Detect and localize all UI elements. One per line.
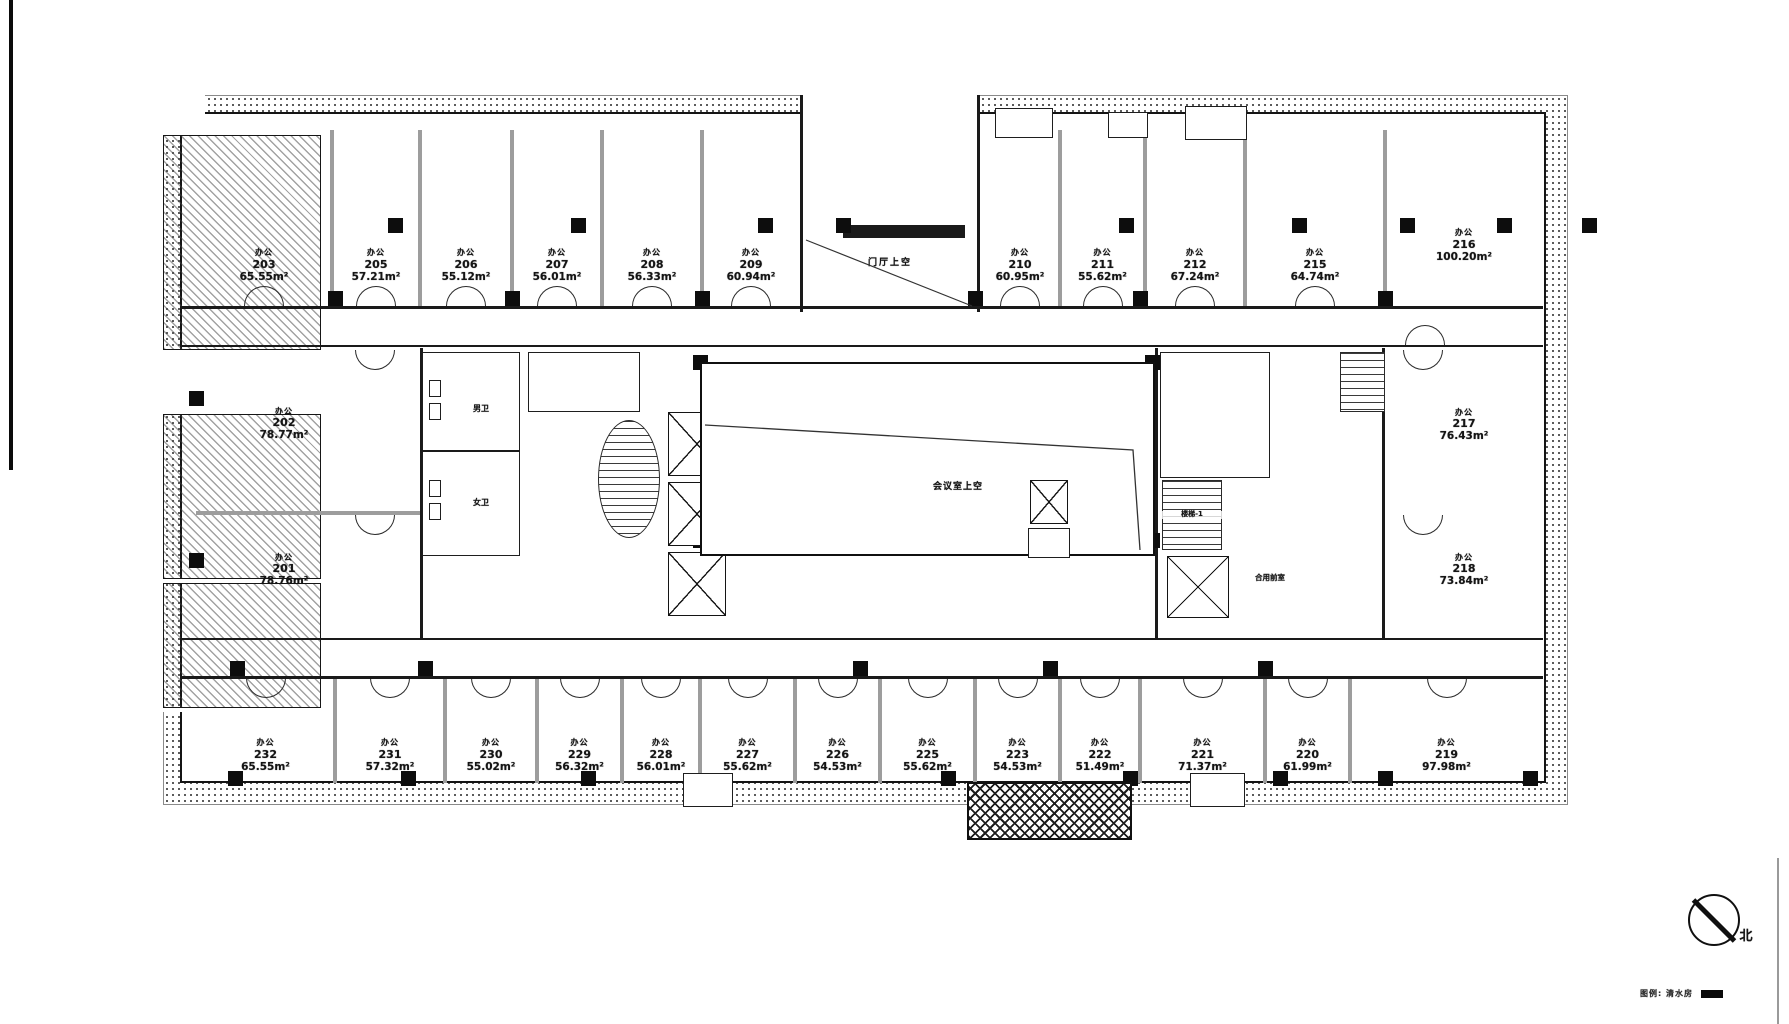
column xyxy=(695,291,710,306)
partition-wall xyxy=(1383,130,1387,306)
door-arc xyxy=(1423,515,1443,535)
column xyxy=(836,218,851,233)
room-unit-label: 办公 xyxy=(1135,248,1255,258)
wall xyxy=(180,306,1543,309)
column xyxy=(1273,771,1288,786)
stair-1-label: 楼梯-1 xyxy=(1162,511,1222,519)
room-number: 212 xyxy=(1135,258,1255,271)
service-shaft xyxy=(528,352,640,412)
room-area: 100.20m² xyxy=(1404,251,1524,264)
column xyxy=(758,218,773,233)
toilet-fixture xyxy=(429,380,441,397)
door-arc xyxy=(1403,515,1423,535)
stair-2 xyxy=(1340,352,1385,412)
room-area: 65.55m² xyxy=(206,761,326,774)
room-number: 232 xyxy=(206,748,326,761)
room-area: 78.76m² xyxy=(224,575,344,588)
room-area: 76.43m² xyxy=(1404,430,1524,443)
room-label-201: 办公20178.76m² xyxy=(224,553,344,588)
room-area: 64.74m² xyxy=(1255,271,1375,284)
roof-canopy-box xyxy=(1185,106,1247,140)
toilet-fixture xyxy=(429,403,441,420)
column xyxy=(1497,218,1512,233)
column xyxy=(1378,771,1393,786)
north-arrow: 北 xyxy=(1688,894,1758,958)
room-area: 67.24m² xyxy=(1135,271,1255,284)
room-unit-label: 办公 xyxy=(224,407,344,417)
room-number: 215 xyxy=(1255,258,1375,271)
wall xyxy=(180,638,1543,640)
door-arc xyxy=(1405,325,1425,345)
column xyxy=(1258,661,1273,676)
room-label-216: 办公216100.20m² xyxy=(1404,228,1524,263)
room-number: 216 xyxy=(1404,238,1524,251)
column xyxy=(505,291,520,306)
room-unit-label: 办公 xyxy=(1255,248,1375,258)
column xyxy=(328,291,343,306)
column xyxy=(189,391,204,406)
roof-canopy-box xyxy=(995,108,1053,138)
room-unit-label: 办公 xyxy=(1404,553,1524,563)
column xyxy=(941,771,956,786)
wall xyxy=(180,345,1543,347)
toilet-divider-wall xyxy=(422,450,520,452)
room-label-232: 办公23265.55m² xyxy=(206,738,326,773)
room-number: 201 xyxy=(224,562,344,575)
column xyxy=(1119,218,1134,233)
column xyxy=(388,218,403,233)
shared-front-room-label: 合用前室 xyxy=(1225,574,1315,582)
bottom-canopy-box xyxy=(683,773,733,807)
mens-toilet-label: 男卫 xyxy=(459,405,503,414)
left-page-edge-line xyxy=(9,0,13,470)
room-unit-label: 办公 xyxy=(206,738,326,748)
column xyxy=(401,771,416,786)
column xyxy=(1133,291,1148,306)
room-unit-label: 办公 xyxy=(1387,738,1507,748)
wall xyxy=(180,676,1543,679)
elevator-shaft xyxy=(668,552,726,616)
column xyxy=(1523,771,1538,786)
room-area: 60.94m² xyxy=(691,271,811,284)
central-hall xyxy=(700,362,1155,556)
fire-elevator-shaft xyxy=(1167,556,1229,618)
room-unit-label: 办公 xyxy=(1143,738,1263,748)
partition-wall xyxy=(196,511,420,515)
room-area: 73.84m² xyxy=(1404,575,1524,588)
room-unit-label: 办公 xyxy=(691,248,811,258)
room-label-217: 办公21776.43m² xyxy=(1404,408,1524,443)
bottom-canopy-box xyxy=(1190,773,1245,807)
column xyxy=(1043,661,1058,676)
room-area: 71.37m² xyxy=(1143,761,1263,774)
column xyxy=(571,218,586,233)
duct-shaft-small xyxy=(1028,528,1070,558)
room-number: 218 xyxy=(1404,562,1524,575)
room-unit-label: 办公 xyxy=(1404,408,1524,418)
room-label-209: 办公20960.94m² xyxy=(691,248,811,283)
toilet-fixture xyxy=(429,480,441,497)
room-number: 219 xyxy=(1387,748,1507,761)
room-label-219: 办公21997.98m² xyxy=(1387,738,1507,773)
right-page-edge-line xyxy=(1777,858,1779,1024)
wall xyxy=(1155,348,1158,638)
duct-shaft xyxy=(1030,480,1068,524)
legend-text: 图例: 清水房 xyxy=(1640,988,1693,999)
roof-canopy-box xyxy=(1108,112,1148,138)
hall-void-label: 会议室上空 xyxy=(893,483,1023,493)
column xyxy=(1378,291,1393,306)
column xyxy=(228,771,243,786)
room-area: 78.77m² xyxy=(224,429,344,442)
legend-swatch xyxy=(1701,990,1723,998)
column xyxy=(968,291,983,306)
room-number: 203 xyxy=(204,258,324,271)
room-label-221: 办公22171.37m² xyxy=(1143,738,1263,773)
room-label-203: 办公20365.55m² xyxy=(204,248,324,283)
legend: 图例: 清水房 xyxy=(1640,988,1723,999)
column xyxy=(1582,218,1597,233)
door-arc xyxy=(1425,325,1445,345)
room-label-212: 办公21267.24m² xyxy=(1135,248,1255,283)
room-number: 209 xyxy=(691,258,811,271)
door-arc xyxy=(1423,350,1443,370)
column xyxy=(418,661,433,676)
floor-plan-page: 门厅上空 办公20365.55m²办公20557.21m²办公20655.12m… xyxy=(0,0,1789,1024)
room-number: 217 xyxy=(1404,417,1524,430)
room-unit-label: 办公 xyxy=(224,553,344,563)
scissor-stair xyxy=(598,420,660,538)
column xyxy=(581,771,596,786)
womens-toilet-label: 女卫 xyxy=(459,499,503,508)
lower-canopy-grid xyxy=(967,782,1132,840)
right-core-room xyxy=(1160,352,1270,478)
north-label: 北 xyxy=(1738,930,1754,944)
room-unit-label: 办公 xyxy=(204,248,324,258)
room-number: 202 xyxy=(224,416,344,429)
column xyxy=(1400,218,1415,233)
room-area: 65.55m² xyxy=(204,271,324,284)
column xyxy=(1292,218,1307,233)
toilet-fixture xyxy=(429,503,441,520)
room-label-215: 办公21564.74m² xyxy=(1255,248,1375,283)
column xyxy=(853,661,868,676)
column xyxy=(230,661,245,676)
building-plan: 门厅上空 办公20365.55m²办公20557.21m²办公20655.12m… xyxy=(163,95,1568,805)
door-arc xyxy=(1403,350,1423,370)
room-label-218: 办公21873.84m² xyxy=(1404,553,1524,588)
column xyxy=(189,553,204,568)
room-number: 221 xyxy=(1143,748,1263,761)
room-area: 97.98m² xyxy=(1387,761,1507,774)
room-label-202: 办公20278.77m² xyxy=(224,407,344,442)
